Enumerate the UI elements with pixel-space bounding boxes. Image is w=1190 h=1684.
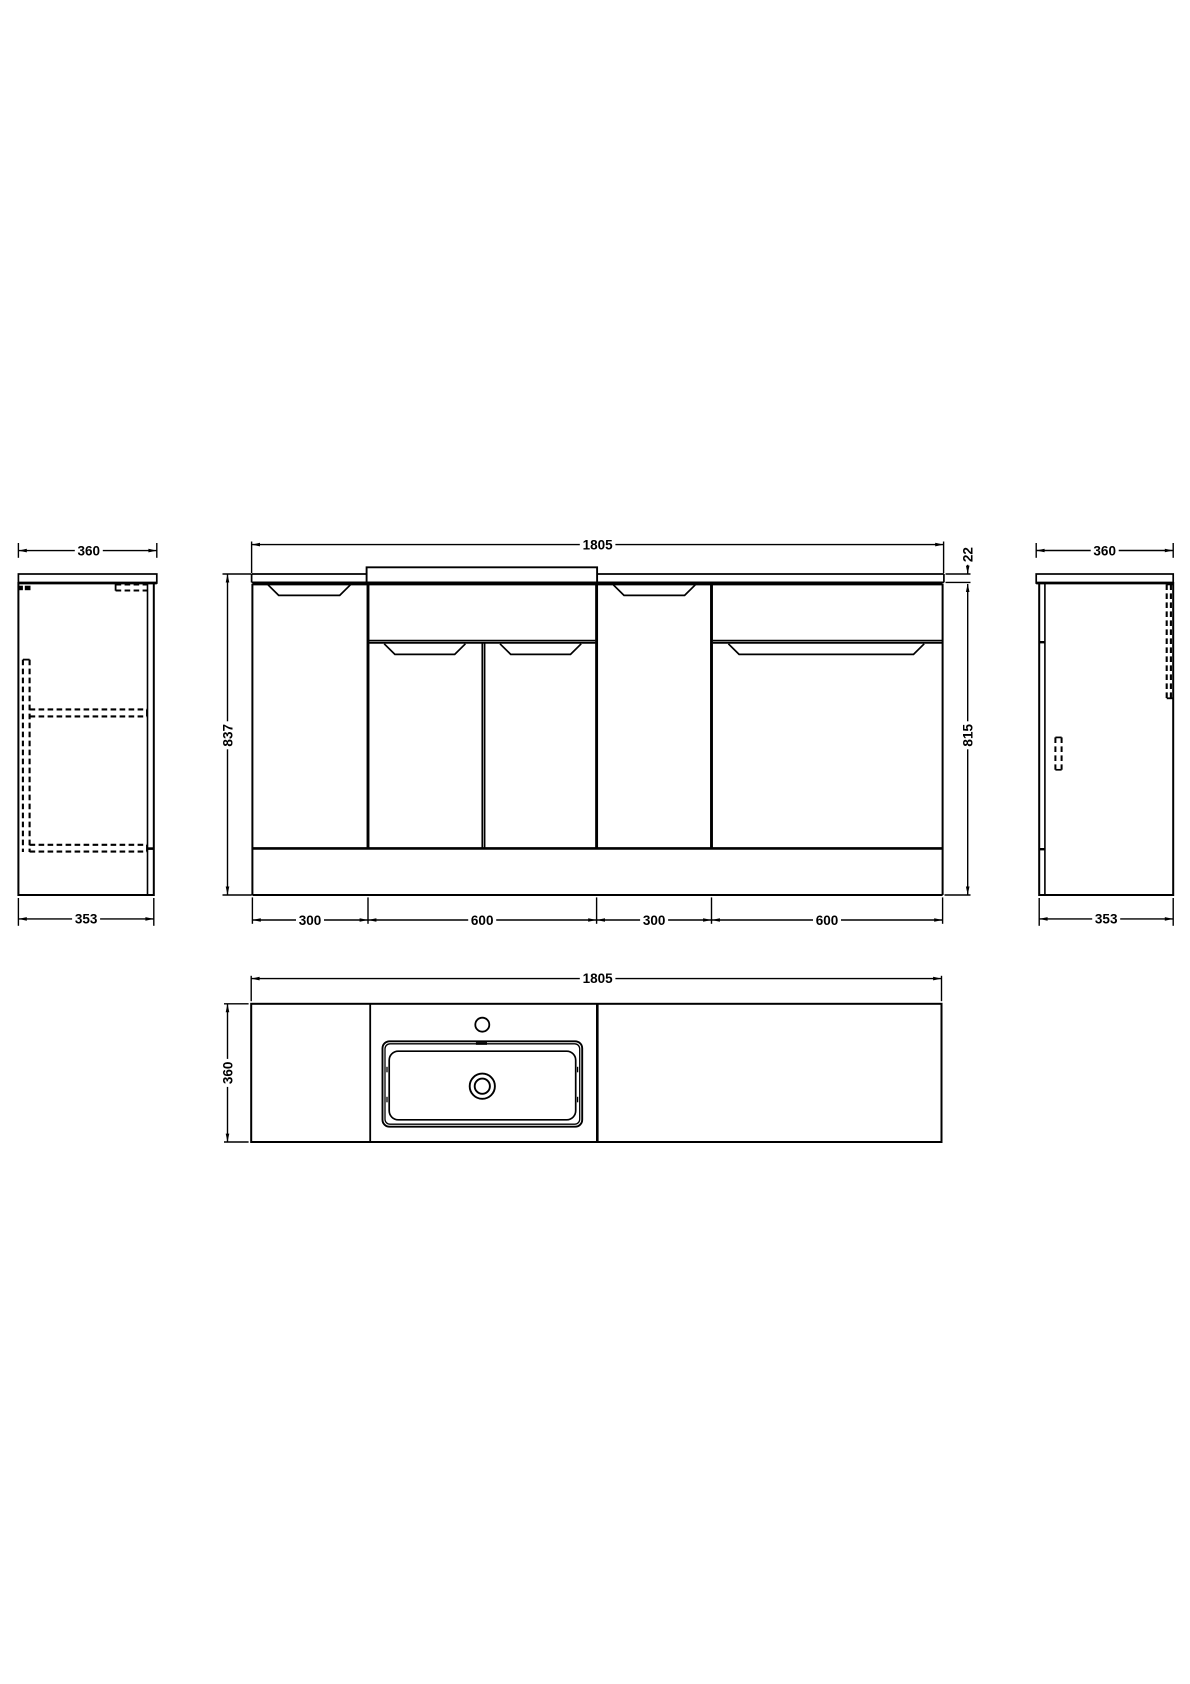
- svg-text:353: 353: [75, 912, 98, 927]
- svg-text:300: 300: [299, 913, 322, 928]
- svg-text:360: 360: [78, 543, 101, 558]
- svg-text:360: 360: [220, 1062, 235, 1085]
- svg-text:22: 22: [961, 547, 976, 562]
- svg-text:600: 600: [816, 913, 839, 928]
- svg-text:353: 353: [1095, 912, 1118, 927]
- svg-text:1805: 1805: [583, 971, 614, 986]
- svg-text:815: 815: [961, 724, 976, 747]
- svg-text:1805: 1805: [583, 537, 614, 552]
- svg-text:300: 300: [643, 913, 666, 928]
- svg-text:360: 360: [1093, 543, 1116, 558]
- svg-text:600: 600: [471, 913, 494, 928]
- svg-text:837: 837: [220, 724, 235, 747]
